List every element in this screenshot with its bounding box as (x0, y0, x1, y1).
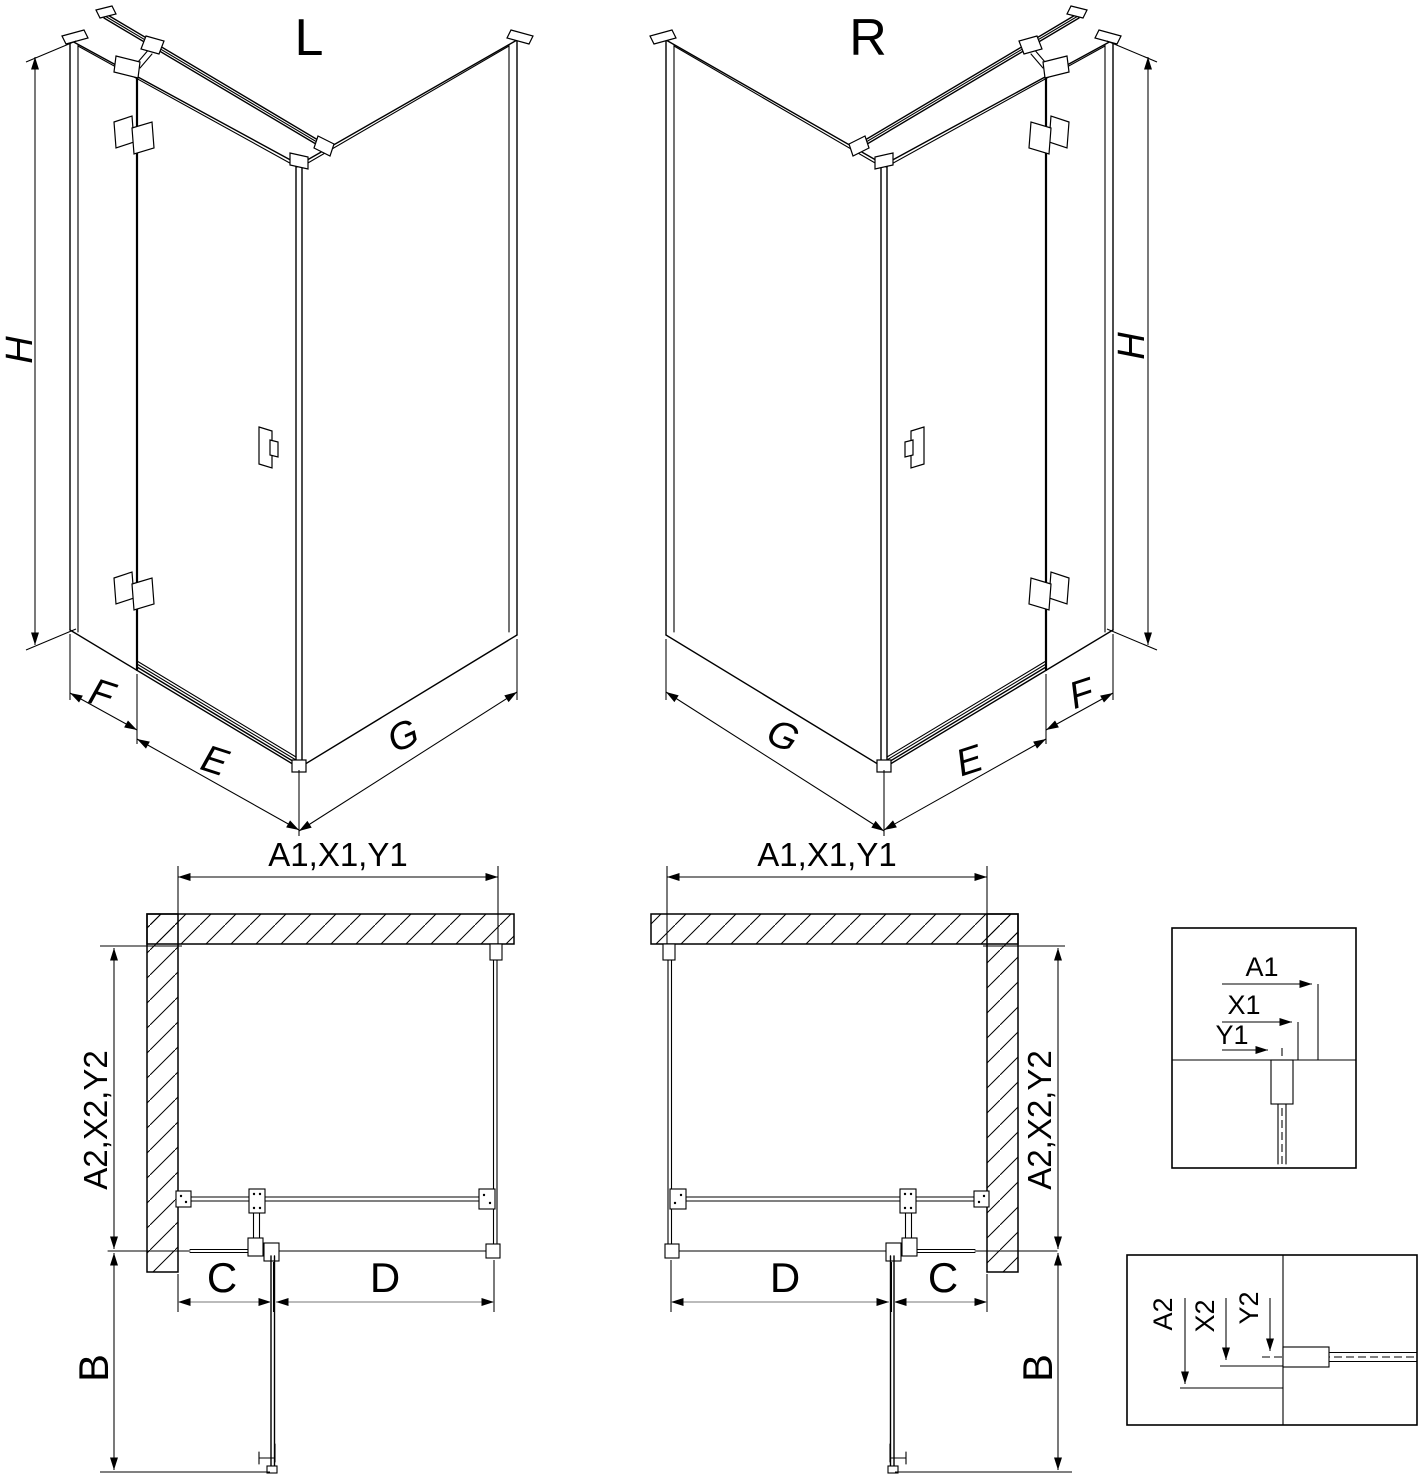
hinge-bottom-icon (132, 578, 154, 610)
dim-label-e: E (951, 737, 989, 785)
bar-clamp-icon (314, 136, 334, 156)
dim-label-y1: Y1 (1215, 1020, 1248, 1050)
technical-drawing-page: L (0, 0, 1426, 1476)
dim-label-y2: Y2 (1234, 1291, 1264, 1324)
detail-box-width: A1 X1 Y1 (1172, 928, 1356, 1168)
bar-wall-bracket-icon (1043, 56, 1069, 78)
bar-corner-clamp-icon (670, 1189, 686, 1209)
panel-cap-icon (507, 30, 533, 44)
iso-view-right: R (650, 6, 1157, 836)
corner-cap-icon (290, 153, 308, 169)
dim-label-x2: X2 (1190, 1299, 1220, 1332)
bar-connector-icon (1019, 36, 1042, 54)
wall-profile-icon (490, 944, 502, 960)
bar-tee-connector-icon (900, 1189, 916, 1213)
door-handle-icon (890, 1444, 906, 1464)
hardware-left (114, 116, 278, 610)
door-handle-icon (905, 440, 913, 457)
dim-label-g: G (761, 711, 805, 761)
plan-view-right: A1,X1,Y1 (651, 836, 1072, 1473)
corner-cap-icon (875, 153, 893, 169)
shower-enclosure-diagram: L (0, 0, 1426, 1476)
wall-top-hatch (651, 914, 1018, 944)
dim-label-b: B (70, 1354, 117, 1382)
hinge-bottom-icon (114, 572, 134, 604)
bar-front-connector-icon (248, 1238, 263, 1256)
wall-profile-icon (1271, 1060, 1293, 1104)
hinge-bottom-icon (1029, 578, 1051, 610)
plan-view-left: A1,X1,Y1 (70, 836, 514, 1473)
dim-label-d: D (370, 1254, 400, 1301)
dim-label-c: C (207, 1254, 237, 1301)
door-handle-icon (270, 440, 278, 457)
side-panel-plan-right (663, 944, 679, 1258)
dim-label-f: F (1064, 670, 1101, 718)
dim-label-width: A1,X1,Y1 (757, 836, 896, 873)
side-panel-plan-left (486, 944, 502, 1258)
dim-label-a1: A1 (1245, 952, 1278, 982)
support-bar-plan-left (176, 1189, 495, 1256)
wall-profile-icon (663, 944, 675, 960)
bar-wall-bracket-icon (114, 56, 140, 78)
hinge-top-icon (114, 116, 134, 148)
dim-label-x1: X1 (1227, 990, 1260, 1020)
corner-post-icon (486, 1244, 500, 1258)
bar-wall-bracket-icon (974, 1191, 989, 1207)
bar-end-cap-icon (96, 6, 116, 18)
door-handle-icon (259, 1444, 275, 1464)
variant-label-right: R (849, 9, 887, 67)
dim-label-g: G (381, 711, 425, 761)
dim-label-h: H (1111, 332, 1153, 360)
hardware-right (905, 116, 1069, 610)
hinge-bottom-icon (1049, 572, 1069, 604)
dim-label-c: C (928, 1254, 958, 1301)
hinge-top-icon (1049, 116, 1069, 148)
dim-label-depth: A2,X2,Y2 (1021, 1050, 1058, 1189)
iso-view-left: L (0, 6, 533, 836)
dim-label-h: H (0, 336, 41, 364)
wall-right-hatch (987, 914, 1018, 1272)
dim-label-e: E (196, 737, 234, 785)
dim-label-f: F (84, 671, 121, 719)
panel-cap-icon (650, 30, 676, 44)
wall-left-hatch (147, 914, 178, 1272)
bar-tee-connector-icon (249, 1189, 265, 1213)
bar-end-cap-icon (1067, 6, 1087, 18)
wall-top-hatch (147, 914, 514, 944)
bar-front-connector-icon (902, 1238, 917, 1256)
front-plan-right (679, 1243, 1057, 1473)
detail-box-depth: A2 X2 Y2 (1127, 1255, 1417, 1425)
bar-connector-icon (141, 36, 164, 54)
corner-post-icon (665, 1244, 679, 1258)
variant-label-left: L (295, 9, 324, 67)
dim-label-b: B (1014, 1354, 1061, 1382)
support-bar-plan-right (670, 1189, 989, 1256)
dim-label-a2: A2 (1148, 1297, 1178, 1330)
hinge-top-icon (1029, 122, 1051, 154)
bar-clamp-icon (849, 136, 869, 156)
dim-label-d: D (770, 1254, 800, 1301)
wall-profile-icon (1283, 1347, 1329, 1367)
hinge-top-icon (132, 122, 154, 154)
dim-label-depth: A2,X2,Y2 (77, 1050, 114, 1189)
bar-corner-clamp-icon (479, 1189, 495, 1209)
bar-wall-bracket-icon (176, 1191, 191, 1207)
front-plan-left (108, 1243, 486, 1473)
dim-label-width: A1,X1,Y1 (268, 836, 407, 873)
